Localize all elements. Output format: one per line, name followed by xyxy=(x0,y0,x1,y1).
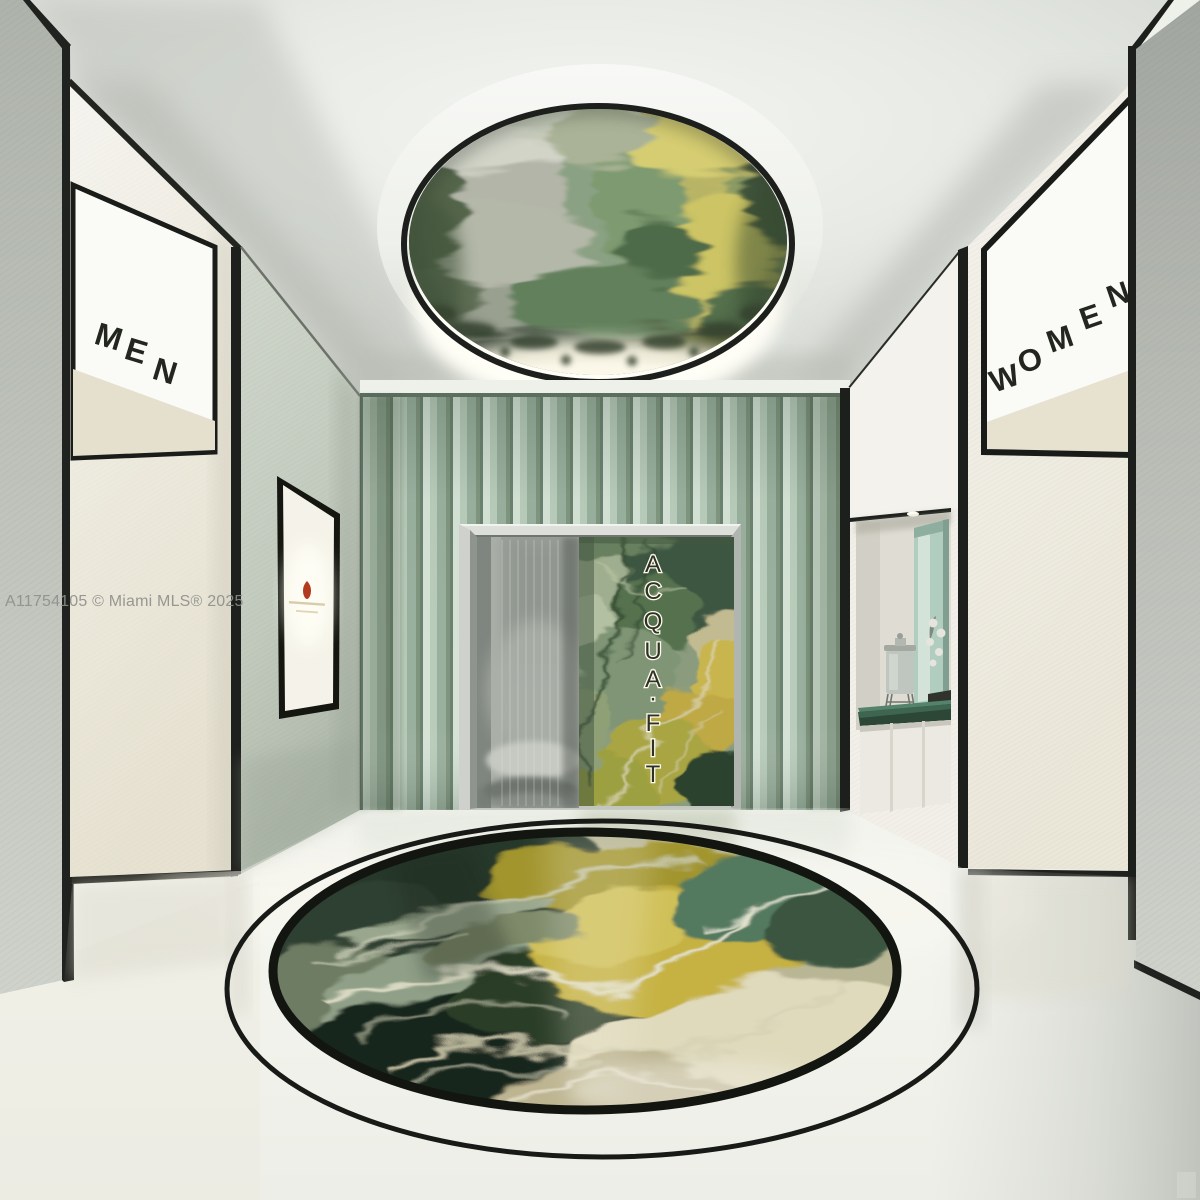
svg-text:A11754105 © Miami MLS® 2025: A11754105 © Miami MLS® 2025 xyxy=(5,593,244,610)
svg-text:I: I xyxy=(650,735,657,762)
svg-text:A: A xyxy=(645,551,661,578)
svg-text:T: T xyxy=(646,761,661,788)
svg-text:Q: Q xyxy=(644,608,663,635)
svg-text:·: · xyxy=(649,685,657,712)
svg-text:F: F xyxy=(646,710,661,737)
svg-text:C: C xyxy=(644,578,661,605)
svg-text:U: U xyxy=(644,638,661,665)
